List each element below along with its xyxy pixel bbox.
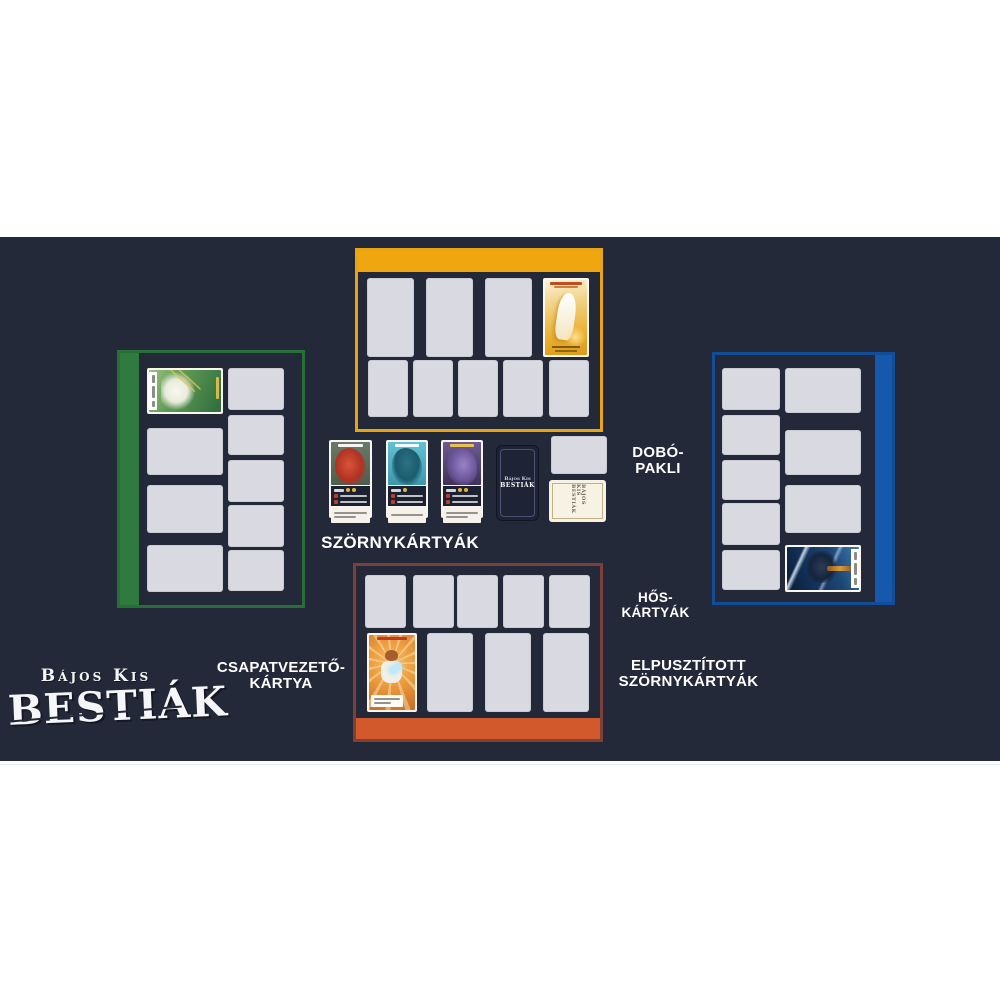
card-art — [545, 280, 587, 355]
rotated-logo-text: Bájos Kis Bestiák — [570, 484, 585, 518]
tiny-text-bar — [152, 386, 155, 398]
hero-card-slot — [367, 278, 414, 357]
player-color-band — [875, 355, 892, 602]
card-art — [388, 442, 426, 485]
monster-card-slot — [549, 575, 590, 628]
tiny-text-bar — [452, 501, 478, 504]
card-stats — [388, 486, 426, 506]
hero-card-slot — [427, 633, 473, 712]
tiny-text-bar — [152, 375, 155, 383]
player-area-right — [712, 352, 895, 605]
red-dragon-monster-card — [329, 440, 372, 518]
monster-card-slot — [722, 368, 780, 410]
tiny-text-bar — [391, 514, 423, 516]
card-footer-text — [555, 350, 577, 352]
tiny-text-bar — [334, 512, 367, 514]
rotated-card-title-strip — [149, 372, 157, 410]
label-line: CSAPATVEZETŐ- — [206, 660, 356, 676]
player-color-band — [358, 251, 600, 272]
coin-row — [391, 488, 423, 492]
purple-dragon-monster-card — [441, 440, 483, 518]
monster-deck-card-back: Bájos Kis BESTIÁK — [497, 446, 538, 520]
teal-shark-monster-card — [386, 440, 428, 518]
tiny-text-bar — [446, 516, 468, 518]
coin-icon — [458, 488, 462, 492]
tiny-text-bar — [340, 495, 367, 498]
rotated-card-title-strip — [851, 549, 859, 588]
label-destroyed-monster-cards: ELPUSZTÍTOTT SZÖRNYKÁRTYÁK — [606, 658, 771, 690]
attack-icon — [391, 500, 395, 504]
card-art — [787, 547, 859, 590]
ability-row — [446, 494, 478, 498]
ability-row — [334, 494, 367, 498]
monster-card-slot — [228, 550, 284, 591]
card-title-text — [550, 282, 582, 285]
tiny-text-bar — [397, 495, 423, 498]
tiny-text-bar — [152, 401, 155, 407]
card-title-text — [338, 444, 363, 447]
monster-card-slot — [722, 460, 780, 500]
tiny-text-bar — [397, 501, 423, 504]
tiny-text-bar — [452, 495, 478, 498]
player-area-top — [355, 248, 603, 432]
label-line: ELPUSZTÍTOTT — [606, 658, 771, 674]
hero-card-slot — [485, 278, 532, 357]
attack-icon — [446, 494, 450, 498]
player-area-left — [117, 350, 305, 608]
board-game-setup-illustration: Bájos Kis BESTIÁK Bájos Kis Bestiák SZÖR… — [0, 0, 1000, 1000]
hero-card-slot — [426, 278, 473, 357]
monster-card-slot — [457, 575, 498, 628]
ability-row — [446, 500, 478, 504]
monster-card-slot — [549, 360, 589, 417]
hero-card-slot — [785, 368, 861, 413]
card-subtitle-text — [554, 286, 578, 288]
card-title-text — [450, 444, 474, 447]
coin-icon — [346, 488, 350, 492]
ability-row — [391, 494, 423, 498]
red-dragon-figure — [335, 448, 366, 485]
monster-card-slot — [503, 360, 543, 417]
card-art — [331, 442, 370, 485]
blue-ice-knight-hero-card — [785, 545, 861, 592]
monster-card-slot — [458, 360, 498, 417]
monster-card-slot — [228, 505, 284, 547]
coin-row — [446, 488, 478, 492]
card-title-text — [395, 444, 419, 447]
monster-card-slot — [228, 368, 284, 410]
coin-row — [334, 488, 367, 492]
card-text-box — [371, 695, 402, 707]
tiny-text-bar — [334, 489, 344, 492]
orange-cat-bard-hero-card — [367, 633, 417, 712]
label-line: DOBÓ- — [618, 445, 698, 461]
card-back-frame: Bájos Kis BESTIÁK — [500, 449, 535, 517]
attack-icon — [446, 500, 450, 504]
deck-logo-main: BESTIÁK — [500, 483, 535, 489]
golden-lion-hero-card — [543, 278, 589, 357]
monster-card-slot — [722, 550, 780, 590]
card-text-box — [331, 507, 370, 523]
label-line: SZÖRNYKÁRTYÁK — [320, 534, 480, 552]
label-line: HŐS- — [613, 591, 698, 606]
attack-icon — [334, 500, 338, 504]
label-line: PAKLI — [618, 461, 698, 477]
coin-icon — [352, 488, 356, 492]
tiny-text-bar — [340, 501, 367, 504]
card-art — [443, 442, 481, 485]
tiny-text-bar — [854, 578, 857, 585]
monster-card-slot — [503, 575, 544, 628]
ability-row — [334, 500, 367, 504]
label-discard-pile: DOBÓ- PAKLI — [618, 445, 698, 477]
tiny-text-bar — [391, 489, 401, 492]
label-line: KÁRTYÁK — [613, 606, 698, 621]
hero-card-slot — [147, 485, 223, 533]
white-card-back: Bájos Kis Bestiák — [549, 480, 606, 522]
hero-card-slot — [785, 485, 861, 533]
mat-bottom-edge — [0, 764, 1000, 765]
purple-dragon-figure — [447, 448, 477, 485]
monster-card-slot — [368, 360, 408, 417]
hero-card-slot — [147, 545, 223, 592]
monster-card-slot — [722, 503, 780, 545]
tiny-text-bar — [446, 512, 478, 514]
coin-icon — [464, 488, 468, 492]
tiny-text-bar — [854, 552, 857, 560]
card-title-text — [377, 637, 406, 640]
hero-card-slot — [785, 430, 861, 475]
tiny-text-bar — [374, 702, 391, 704]
tiny-text-bar — [334, 516, 356, 518]
player-color-band — [356, 718, 600, 739]
card-text-box — [388, 507, 426, 523]
card-art — [369, 635, 415, 710]
card-text-box — [443, 507, 481, 523]
monster-card-slot — [722, 415, 780, 455]
card-back-frame: Bájos Kis Bestiák — [552, 483, 603, 519]
monster-card-slot — [365, 575, 406, 628]
monster-card-slot — [413, 575, 454, 628]
green-forest-dragon-hero-card — [147, 368, 223, 414]
label-team-leader-card: CSAPATVEZETŐ- KÁRTYA — [206, 660, 356, 692]
monster-card-slot — [413, 360, 453, 417]
label-line: SZÖRNYKÁRTYÁK — [606, 674, 771, 690]
label-hero-cards: HŐS- KÁRTYÁK — [613, 591, 698, 620]
coin-icon — [403, 488, 407, 492]
rotated-card-name — [216, 377, 219, 400]
ability-row — [391, 500, 423, 504]
hero-card-slot — [147, 428, 223, 475]
player-color-band — [120, 353, 139, 605]
tiny-text-bar — [374, 698, 399, 700]
attack-icon — [334, 494, 338, 498]
tiny-text-bar — [446, 489, 456, 492]
teal-shark-figure — [392, 448, 422, 485]
monster-card-slot — [228, 415, 284, 455]
discard-pile-slot — [551, 436, 607, 474]
player-area-bottom — [353, 563, 603, 742]
card-art — [149, 370, 221, 412]
label-monster-cards: SZÖRNYKÁRTYÁK — [320, 534, 480, 552]
label-line: KÁRTYA — [206, 676, 356, 692]
card-footer-text — [552, 346, 581, 348]
hero-card-slot — [543, 633, 589, 712]
monster-card-slot — [228, 460, 284, 502]
tiny-text-bar — [854, 563, 857, 575]
hero-card-slot — [485, 633, 531, 712]
card-stats — [331, 486, 370, 506]
game-logo: Bájos Kis BESTIÁK — [8, 666, 184, 728]
attack-icon — [391, 494, 395, 498]
gold-weapon — [827, 566, 853, 571]
card-stats — [443, 486, 481, 506]
